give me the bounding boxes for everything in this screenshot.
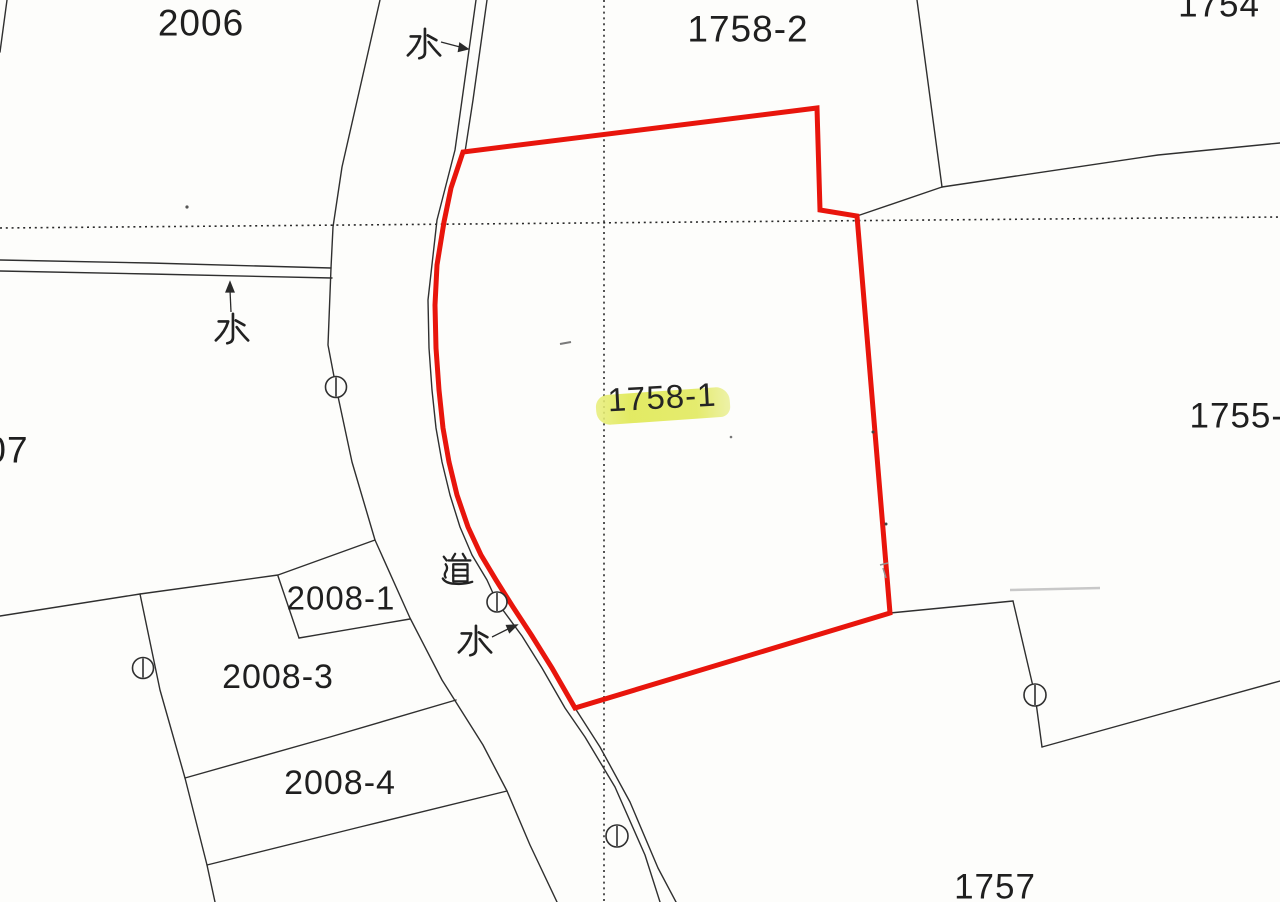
survey-marker	[1024, 684, 1046, 706]
scan-speck	[185, 205, 188, 208]
parcel-label-2008-1: 2008-1	[287, 582, 396, 615]
scan-speck	[885, 523, 888, 526]
survey-marker	[133, 658, 154, 679]
parcel-1755-south-edge-left	[890, 601, 1013, 613]
scan-speck	[730, 436, 733, 439]
parcel-1755-north-edge-right	[942, 143, 1280, 187]
west-water-channel-bottom-edge	[0, 271, 332, 278]
parcel-2008-4-south-edge	[207, 791, 507, 865]
water-arrow-left	[226, 282, 234, 312]
west-water-channel-top-edge	[0, 260, 331, 268]
parcel-1755-north-edge-left	[857, 187, 942, 216]
survey-marker	[606, 825, 628, 847]
block-west-boundary	[140, 594, 215, 902]
water-kanji-label-top	[408, 29, 440, 58]
water-arrow-middle	[492, 625, 517, 637]
survey-marker	[326, 377, 347, 398]
parcel-label-2008-3: 2008-3	[222, 660, 334, 694]
parcel-label-1754: 1754	[1178, 0, 1260, 23]
road-right-edge-water-channel-left	[428, 0, 660, 902]
top-left-corner-boundary	[0, 0, 7, 52]
map-geometry	[0, 0, 1280, 902]
water-kanji-label-middle	[459, 626, 491, 655]
scan-speck	[872, 431, 875, 434]
water-channel-right-upper	[465, 0, 487, 152]
annotation-arrows	[226, 42, 517, 637]
scan-dash	[560, 342, 571, 344]
parcel-2008-1-south-edge	[299, 619, 410, 638]
parcel-1757-north-edge-right	[1042, 681, 1280, 747]
parcel-1754-west-edge	[917, 0, 942, 187]
parcel-label-1758-2: 1758-2	[687, 11, 808, 48]
scan-streak	[1010, 588, 1100, 590]
survey-marker	[487, 592, 507, 612]
east-parcel-boundaries	[857, 0, 1280, 747]
parcel-label-2006: 2006	[158, 5, 244, 42]
horizontal-dotted-boundary	[0, 217, 1280, 228]
water-kanji-label-left	[216, 314, 248, 343]
parcel-label-2007-partial: 07	[0, 432, 29, 469]
parcel-label-1755-2: 1755-2	[1190, 399, 1280, 434]
parcel-label-2008-4: 2008-4	[284, 766, 396, 800]
road-kanji-label	[443, 554, 472, 584]
dotted-boundary-lines	[0, 0, 1280, 902]
cadastral-map: 2006 1758-2 1754 07 1755-2 1758-1 2008-1…	[0, 0, 1280, 902]
water-channel-right-lower	[575, 708, 676, 902]
southwest-parcel-boundaries	[0, 540, 507, 902]
parcel-label-1757: 1757	[954, 870, 1036, 902]
parcel-1757-north-edge-step	[1013, 601, 1042, 747]
parcel-label-1758-1-selected: 1758-1	[607, 378, 717, 417]
water-arrow-top	[441, 42, 468, 51]
